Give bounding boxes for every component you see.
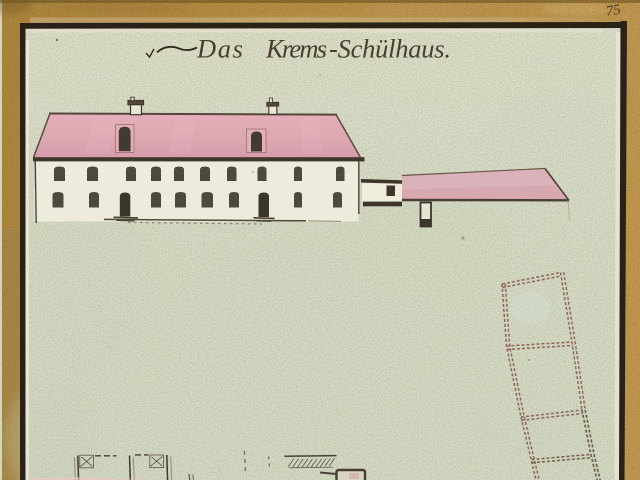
svg-text:75: 75 (605, 2, 622, 20)
svg-text:DasKrems-Schülhaus.: DasKrems-Schülhaus. (196, 34, 451, 64)
